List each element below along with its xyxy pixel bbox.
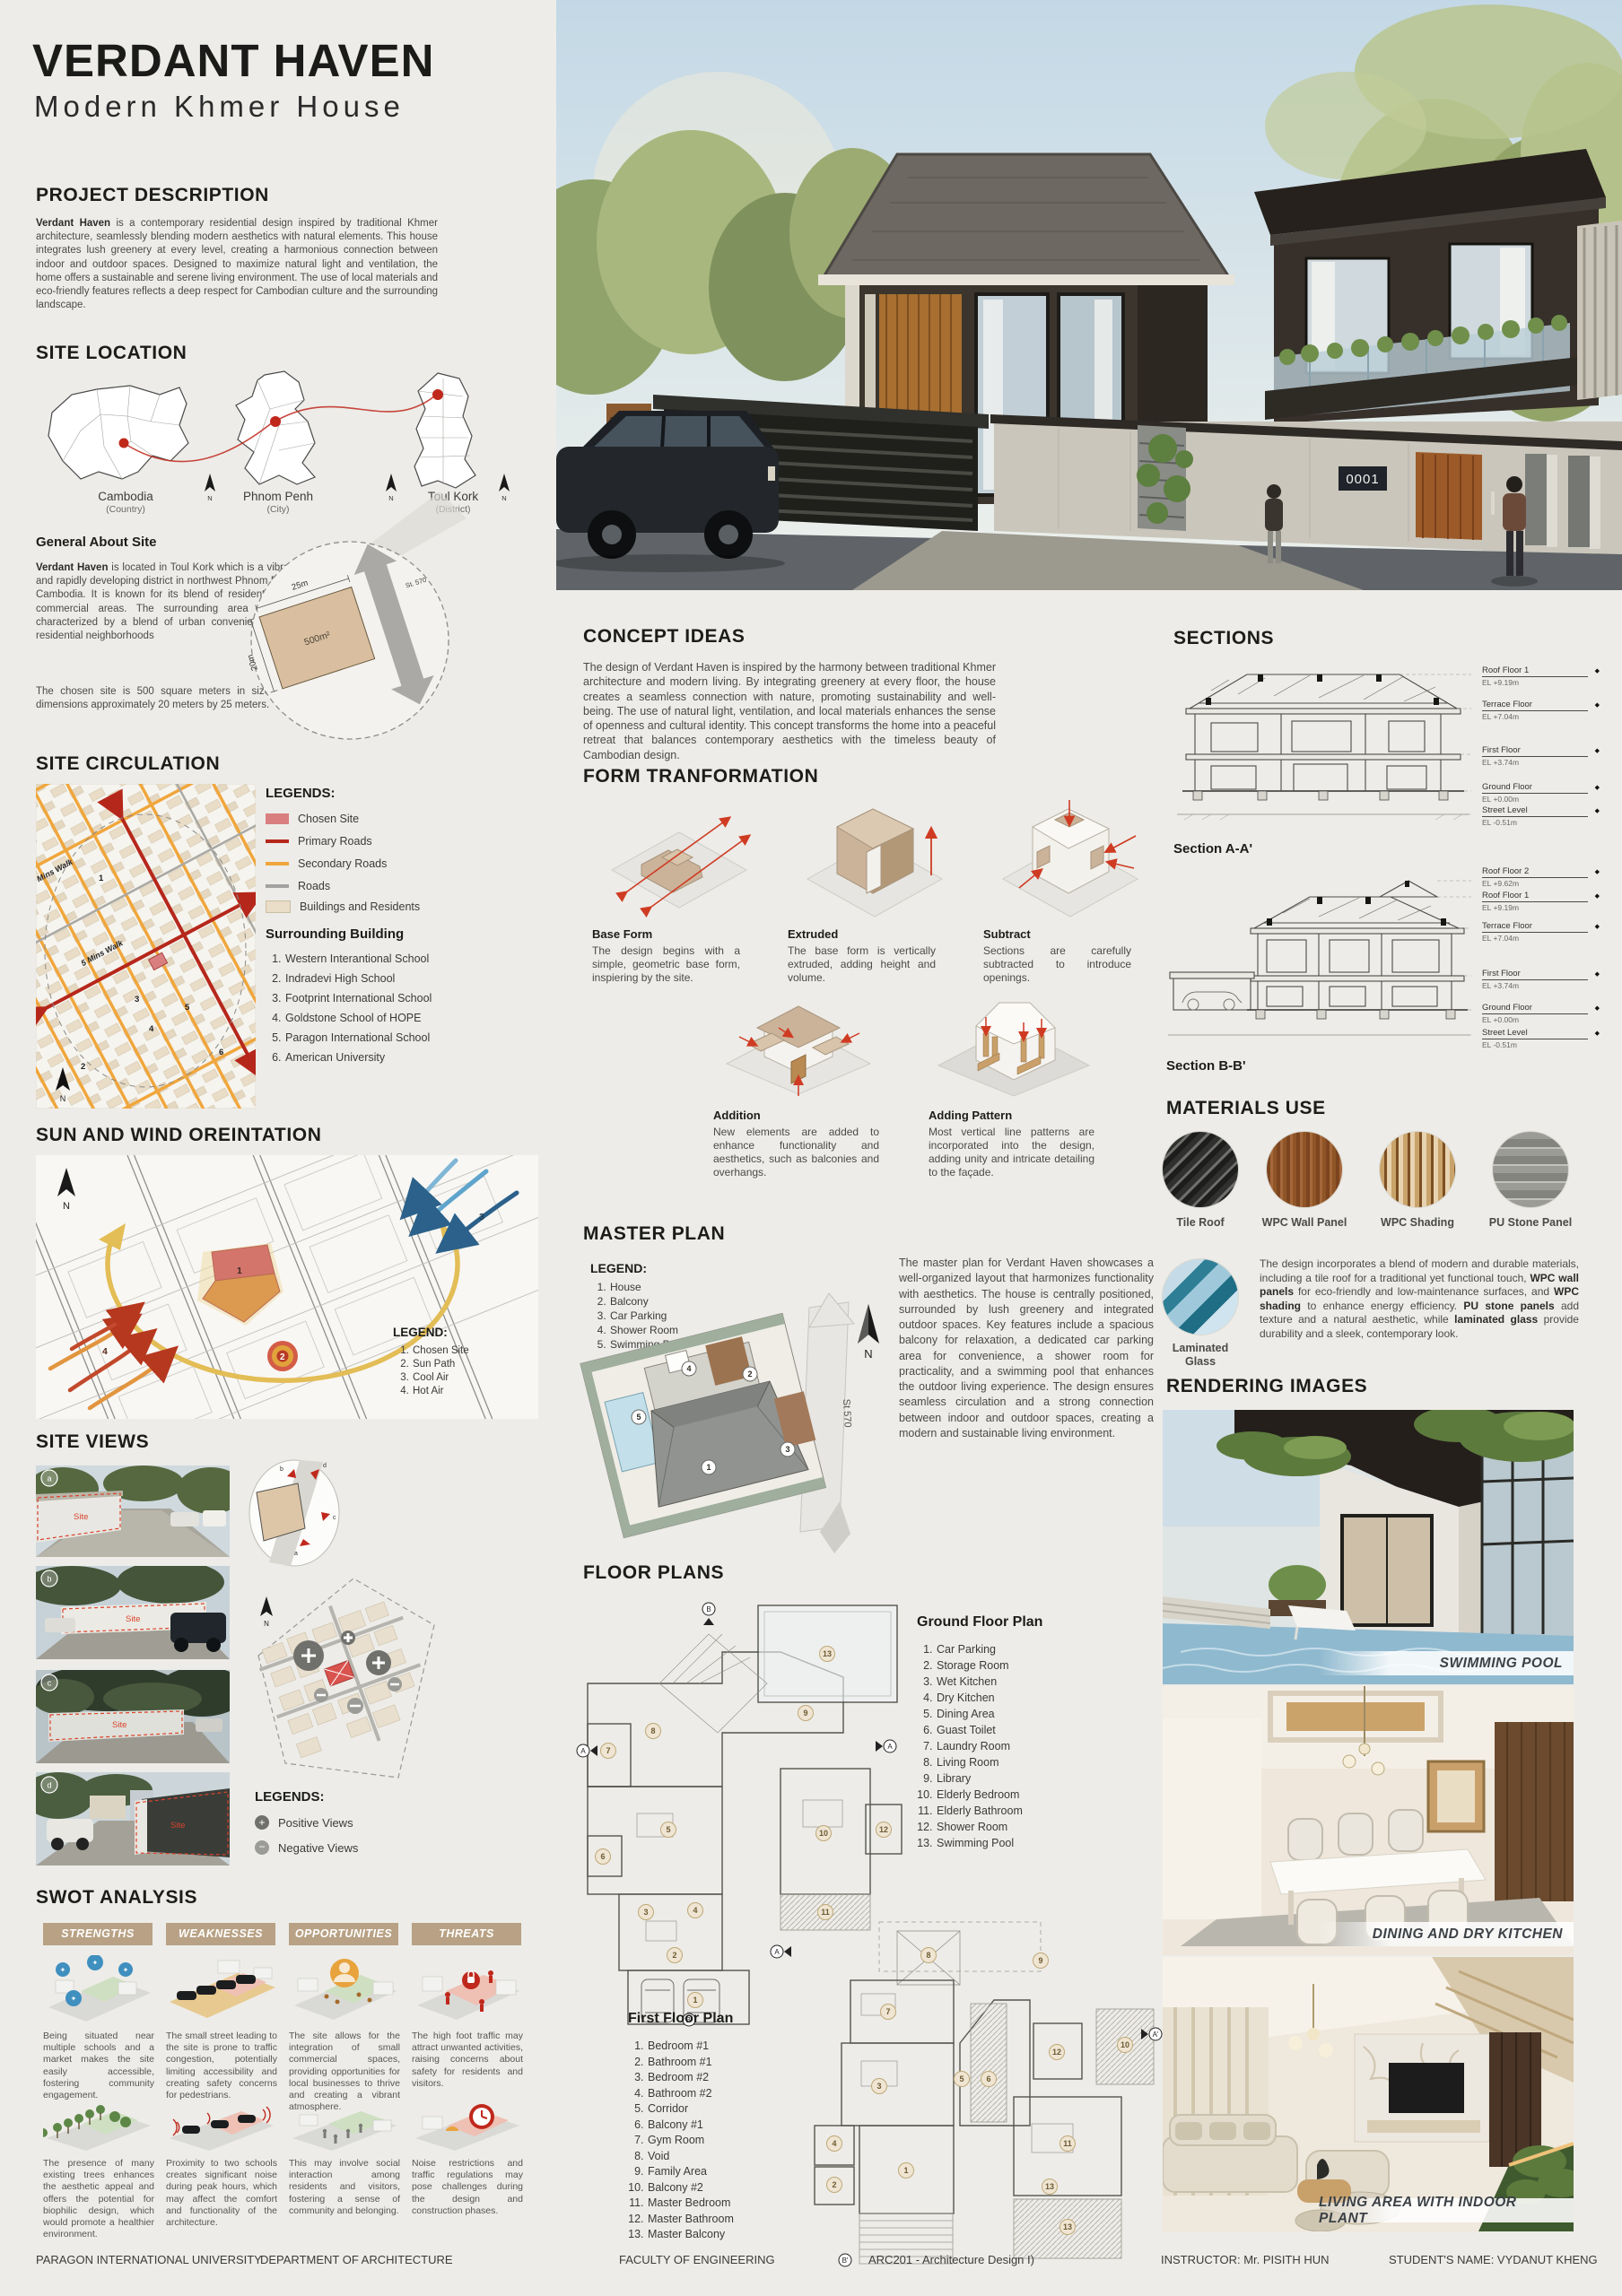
site-location-maps: N N N <box>45 370 511 504</box>
sun-symbol: 2 <box>267 1341 298 1371</box>
svg-text:12: 12 <box>1052 2048 1061 2057</box>
sections-heading: SECTIONS <box>1173 628 1274 649</box>
list-item: Storage Room <box>936 1659 1160 1672</box>
minus-icon: − <box>255 1840 269 1855</box>
svg-text:4: 4 <box>693 1906 697 1915</box>
photo-letter-badge: d <box>47 1781 51 1790</box>
site-circulation-map: 10 Mins Walk 5 Mins Walk 1 2 3 4 5 6 N <box>36 784 256 1109</box>
tv-screen <box>1389 2063 1464 2113</box>
materials-body: The design incorporates a blend of moder… <box>1260 1257 1579 1342</box>
site-view-photo-b: Site b <box>36 1566 230 1659</box>
list-item: Footprint International School <box>284 992 536 1004</box>
svg-text:N: N <box>60 1094 66 1103</box>
project-description-body: Verdant Haven is a contemporary resident… <box>36 217 438 312</box>
buildings-swatch <box>266 900 291 913</box>
form-transformation-heading: FORM TRANFORMATION <box>583 766 818 787</box>
form-step-base-body: The design begins with a simple, geometr… <box>592 944 740 985</box>
concept-ideas-body: The design of Verdant Haven is inspired … <box>583 660 996 762</box>
svg-text:2: 2 <box>672 1951 676 1960</box>
svg-text:N: N <box>864 1347 872 1361</box>
list-item: Western Interantional School <box>284 952 536 965</box>
svg-text:4: 4 <box>686 1364 691 1373</box>
render-caption-bar: SWIMMING POOL <box>1319 1651 1574 1675</box>
balcony-1-hatch <box>971 2004 1007 2122</box>
svg-text:8: 8 <box>926 1951 930 1960</box>
svg-text:3: 3 <box>785 1445 789 1454</box>
legend-secondary-roads: Secondary Roads <box>266 857 387 870</box>
svg-text:2: 2 <box>747 1370 752 1378</box>
master-plan-heading: MASTER PLAN <box>583 1223 725 1245</box>
list-item: Laundry Room <box>936 1740 1160 1752</box>
svg-text:✦: ✦ <box>123 1966 129 1974</box>
legend-positive-views: + Positive Views <box>255 1815 353 1830</box>
form-step-pattern-title: Adding Pattern <box>929 1109 1012 1122</box>
legend-roads: Roads <box>266 880 330 892</box>
legend-primary-roads: Primary Roads <box>266 835 372 848</box>
swot-strengths-illustration-2 <box>43 2100 154 2152</box>
svg-text:2: 2 <box>832 2180 836 2189</box>
section-b-level-first: First FloorEL +3.74m <box>1482 969 1588 990</box>
svg-text:A: A <box>774 1948 780 1956</box>
list-item: Chosen Site <box>412 1345 546 1356</box>
form-step-base-illustration <box>592 800 767 921</box>
list-item: Guast Toilet <box>936 1724 1160 1736</box>
house-right-volume <box>1254 149 1622 423</box>
section-a-level-street: Street LevelEL -0.51m <box>1482 805 1588 827</box>
floor-plans-heading: FLOOR PLANS <box>583 1562 724 1584</box>
svg-text:13: 13 <box>1063 2222 1072 2231</box>
road-swatch <box>266 884 289 888</box>
svg-text:✦: ✦ <box>60 1966 66 1974</box>
swot-opportunities-illustration-1 <box>289 1955 400 2023</box>
hero-render-image: 0001 <box>556 0 1622 590</box>
page-title: VERDANT HAVEN <box>32 34 434 87</box>
swot-ribbon-threats: THREATS <box>412 1923 521 1945</box>
swot-threats-text-2: Noise restrictions and traffic regulatio… <box>412 2158 523 2217</box>
section-a-level-ground: Ground FloorEL +0.00m <box>1482 782 1588 804</box>
list-item: Indradevi High School <box>284 972 536 985</box>
material-wpc-shading-swatch <box>1380 1132 1455 1207</box>
render-caption-bar: LIVING AREA WITH INDOOR PLANT <box>1319 2198 1574 2222</box>
list-item: Dining Area <box>936 1708 1160 1720</box>
site-circulation-heading: SITE CIRCULATION <box>36 753 220 775</box>
footer-student: STUDENT'S NAME: VYDANUT KHENG <box>1389 2253 1598 2266</box>
material-pu-stone-label: PU Stone Panel <box>1477 1216 1584 1229</box>
svg-text:13: 13 <box>1045 2182 1054 2191</box>
about-site-heading: General About Site <box>36 535 156 550</box>
cambodia-map <box>48 386 188 479</box>
render-dining-dry-kitchen: DINING AND DRY KITCHEN <box>1163 1686 1574 1955</box>
render-swimming-pool: SWIMMING POOL <box>1163 1410 1574 1684</box>
section-a-label: Section A-A' <box>1173 841 1252 857</box>
material-wpc-wall-swatch <box>1267 1132 1342 1207</box>
form-step-addition-body: New elements are added to enhance functi… <box>713 1126 879 1179</box>
svg-text:9: 9 <box>1038 1956 1042 1965</box>
list-item: Shower Room <box>936 1821 1160 1833</box>
swot-threats-illustration-1 <box>412 1955 523 2023</box>
north-arrow-icon: N <box>205 474 215 502</box>
swot-ribbon-strengths: STRENGTHS <box>43 1923 153 1945</box>
footer-course: ARC201 - Architecture Design I) <box>868 2253 1034 2266</box>
house-number: 0001 <box>1346 472 1379 487</box>
swot-threats-text-1: The high foot traffic may attract unwant… <box>412 2031 523 2090</box>
svg-text:6: 6 <box>986 2074 990 2083</box>
list-item: Hot Air <box>412 1386 546 1396</box>
list-item: Elderly Bedroom <box>936 1788 1160 1801</box>
list-item: Swimming Pool <box>936 1837 1160 1849</box>
svg-text:5: 5 <box>666 1825 670 1834</box>
photo-letter-badge: a <box>47 1474 51 1483</box>
svg-text:a: a <box>294 1551 298 1557</box>
material-tile-roof-label: Tile Roof <box>1147 1216 1254 1229</box>
swot-opportunities-text-2: This may involve social interaction amon… <box>289 2158 400 2217</box>
footer-faculty: FACULTY OF ENGINEERING <box>619 2253 775 2266</box>
swot-weaknesses-illustration-2 <box>166 2100 277 2152</box>
svg-text:8: 8 <box>650 1726 655 1735</box>
list-item: Paragon International School <box>284 1031 536 1044</box>
concept-ideas-heading: CONCEPT IDEAS <box>583 626 746 648</box>
svg-text:3: 3 <box>643 1908 648 1917</box>
svg-text:N: N <box>63 1201 70 1212</box>
footer-university: PARAGON INTERNATIONAL UNIVERSITY <box>36 2253 262 2266</box>
site-location-heading: SITE LOCATION <box>36 343 187 364</box>
swot-heading: SWOT ANALYSIS <box>36 1887 197 1909</box>
svg-text:5: 5 <box>959 2074 964 2083</box>
surrounding-marker-2: 2 <box>81 1062 85 1072</box>
list-item: Sun Path <box>412 1359 546 1370</box>
section-b-drawing <box>1166 870 1471 1058</box>
svg-text:5: 5 <box>636 1413 641 1422</box>
swot-strengths-text-2: The presence of many existing trees enha… <box>43 2158 154 2241</box>
form-step-subtract-title: Subtract <box>983 927 1031 941</box>
svg-text:1: 1 <box>903 2166 908 2175</box>
site-view-photo-a: Site a <box>36 1465 230 1557</box>
svg-text:1: 1 <box>706 1463 711 1472</box>
master-plan-body: The master plan for Verdant Haven showca… <box>899 1256 1154 1441</box>
rendering-images-heading: RENDERING IMAGES <box>1166 1376 1367 1397</box>
surrounding-marker-5: 5 <box>185 1003 190 1013</box>
svg-text:4: 4 <box>832 2139 836 2148</box>
site-dimensions-diagram: 25m 20m 500m² St. 570 <box>244 491 468 750</box>
list-item: Goldstone School of HOPE <box>284 1012 536 1024</box>
site-views-map: N <box>249 1570 440 1783</box>
svg-text:6: 6 <box>600 1852 605 1861</box>
surrounding-marker-4: 4 <box>149 1024 154 1034</box>
surrounding-marker-6: 6 <box>219 1048 223 1057</box>
list-item: Library <box>936 1772 1160 1785</box>
svg-text:d: d <box>323 1463 327 1469</box>
svg-text:A: A <box>887 1743 893 1751</box>
list-item: Cool Air <box>412 1372 546 1383</box>
form-step-base-title: Base Form <box>592 927 652 941</box>
site-label: Site <box>126 1614 140 1624</box>
swot-strengths-text-1: Being situated near multiple schools and… <box>43 2031 154 2101</box>
toul-kork-map <box>414 373 475 488</box>
ground-floor-plan-list: Car Parking Storage Room Wet Kitchen Dry… <box>920 1643 1160 1849</box>
plus-icon: + <box>255 1815 269 1830</box>
street-label: St 570 <box>841 1399 853 1428</box>
site-views-legend-title: LEGENDS: <box>255 1789 325 1805</box>
secondary-road-swatch <box>266 862 289 865</box>
footer-instructor: INSTRUCTOR: Mr. PISITH HUN <box>1161 2253 1330 2266</box>
primary-road-swatch <box>266 839 289 843</box>
circulation-legend-title: LEGENDS: <box>266 786 336 801</box>
section-a-level-roof1: Roof Floor 1EL +9.19m <box>1482 665 1588 687</box>
site-view-photo-c: Site c <box>36 1670 230 1763</box>
svg-text:A: A <box>580 1747 586 1755</box>
material-tile-roof-swatch <box>1163 1132 1238 1207</box>
svg-text:11: 11 <box>1063 2139 1072 2148</box>
project-description-heading: PROJECT DESCRIPTION <box>36 185 269 206</box>
material-wpc-shading-label: WPC Shading <box>1364 1216 1471 1229</box>
sun-wind-heading: SUN AND WIND OREINTATION <box>36 1125 322 1146</box>
surrounding-building-list: Western Interantional School Indradevi H… <box>269 952 536 1064</box>
svg-text:2: 2 <box>280 1352 285 1362</box>
material-pu-stone-swatch <box>1493 1132 1568 1207</box>
section-b-level-roof1: Roof Floor 1EL +9.19m <box>1482 891 1588 912</box>
svg-text:10: 10 <box>1121 2040 1129 2049</box>
sun-wind-legend-list: Chosen Site Sun Path Cool Air Hot Air <box>397 1345 546 1396</box>
section-a-drawing <box>1175 664 1471 843</box>
site-views-key-diagram: bdac <box>248 1458 341 1568</box>
surrounding-building-title: Surrounding Building <box>266 926 404 942</box>
master-plan-drawing: St 570 1 2 3 4 5 <box>574 1291 884 1556</box>
form-step-addition-title: Addition <box>713 1109 761 1122</box>
first-floor-plan-drawing: 8 9 7 3 5 6 12 10 11 13 4 2 1 13 A A' B' <box>745 1918 1166 2269</box>
presentation-board: 0001 <box>0 0 1622 2296</box>
list-item: Dry Kitchen <box>936 1692 1160 1704</box>
swot-threats-illustration-2 <box>412 2100 523 2152</box>
north-arrow-icon: N <box>850 1302 886 1365</box>
hot-air-number: 4 <box>102 1346 108 1357</box>
svg-text:B: B <box>706 1605 711 1613</box>
svg-text:N: N <box>264 1620 269 1628</box>
swot-weaknesses-illustration-1 <box>166 1955 277 2023</box>
list-item: Car Parking <box>936 1643 1160 1656</box>
form-step-addition-illustration <box>709 997 888 1098</box>
svg-text:1: 1 <box>693 1996 697 2005</box>
map-label-cambodia: Cambodia(Country) <box>67 490 184 515</box>
swot-weaknesses-text-2: Proximity to two schools creates signifi… <box>166 2158 277 2229</box>
section-a-level-first: First FloorEL +3.74m <box>1482 745 1588 767</box>
svg-text:11: 11 <box>821 1908 830 1917</box>
footer-department: DEPARTMENT OF ARCHITECTURE <box>260 2253 453 2266</box>
first-floor-plan-title: First Floor Plan <box>628 2011 733 2027</box>
swot-opportunities-illustration-2 <box>289 2100 400 2152</box>
photo-letter-badge: b <box>47 1575 51 1584</box>
svg-text:13: 13 <box>823 1649 832 1658</box>
svg-text:✦: ✦ <box>71 1995 77 2003</box>
site-views-heading: SITE VIEWS <box>36 1431 149 1453</box>
form-step-extruded-body: The base form is vertically extruded, ad… <box>788 944 936 985</box>
svg-text:c: c <box>333 1515 336 1521</box>
section-b-label: Section B-B' <box>1166 1058 1246 1074</box>
svg-text:b: b <box>280 1466 283 1473</box>
form-step-pattern-illustration <box>924 997 1103 1098</box>
list-item: American University <box>284 1051 536 1064</box>
photo-letter-badge: c <box>48 1679 52 1688</box>
material-laminated-glass-swatch <box>1163 1259 1238 1335</box>
section-b-level-roof2: Roof Floor 2EL +9.62m <box>1482 866 1588 888</box>
svg-text:9: 9 <box>803 1709 807 1718</box>
svg-text:✦: ✦ <box>92 1959 99 1967</box>
svg-text:10: 10 <box>819 1829 828 1838</box>
section-b-level-street: Street LevelEL -0.51m <box>1482 1028 1588 1049</box>
site-marker-number: 1 <box>237 1265 242 1276</box>
north-arrow-icon: N <box>260 1596 273 1628</box>
site-label: Site <box>74 1512 88 1522</box>
form-step-pattern-body: Most vertical line patterns are incorpor… <box>929 1126 1094 1179</box>
swot-ribbon-opportunities: OPPORTUNITIES <box>289 1923 398 1945</box>
legend-chosen-site: Chosen Site <box>266 813 359 825</box>
master-plan-legend-title: LEGEND: <box>590 1261 647 1275</box>
section-a-level-terrace: Terrace FloorEL +7.04m <box>1482 700 1588 721</box>
site-label: Site <box>112 1720 126 1730</box>
list-item: Wet Kitchen <box>936 1675 1160 1688</box>
svg-text:A': A' <box>1153 2031 1159 2039</box>
list-item: Living Room <box>936 1756 1160 1769</box>
swot-weaknesses-text-1: The small street leading to the site is … <box>166 2031 277 2101</box>
svg-text:B': B' <box>842 2257 849 2265</box>
svg-text:7: 7 <box>885 2007 890 2016</box>
materials-heading: MATERIALS USE <box>1166 1098 1326 1119</box>
cool-air-number: 3 <box>479 1212 484 1222</box>
page-subtitle: Modern Khmer House <box>34 90 405 124</box>
swot-ribbon-weaknesses: WEAKNESSES <box>166 1923 275 1945</box>
phnom-penh-map <box>236 371 315 484</box>
chosen-site-swatch <box>266 813 289 824</box>
ground-floor-plan-title: Ground Floor Plan <box>917 1614 1042 1631</box>
material-laminated-glass-label: LaminatedGlass <box>1147 1342 1254 1369</box>
section-b-level-terrace: Terrace FloorEL +7.04m <box>1482 921 1588 943</box>
svg-text:3: 3 <box>876 2082 881 2091</box>
svg-text:7: 7 <box>606 1746 610 1755</box>
list-item: Elderly Bathroom <box>936 1805 1160 1817</box>
form-step-extruded-title: Extruded <box>788 927 838 941</box>
site-view-photo-d: Site d <box>36 1772 230 1865</box>
render-caption-bar: DINING AND DRY KITCHEN <box>1319 1922 1574 1946</box>
surrounding-marker-3: 3 <box>135 995 139 1004</box>
material-wpc-wall-label: WPC Wall Panel <box>1251 1216 1358 1229</box>
surrounding-marker-1: 1 <box>99 874 104 883</box>
section-b-level-ground: Ground FloorEL +0.00m <box>1482 1003 1588 1024</box>
form-step-subtract-body: Sections are carefully subtracted to int… <box>983 944 1131 985</box>
svg-text:N: N <box>207 494 212 502</box>
sun-wind-legend-title: LEGEND: <box>393 1326 448 1339</box>
form-step-subtract-illustration <box>983 800 1158 921</box>
swot-strengths-illustration-1: ✦✦✦✦ <box>43 1955 154 2023</box>
site-label: Site <box>170 1821 185 1831</box>
svg-text:12: 12 <box>879 1825 888 1834</box>
form-step-extruded-illustration <box>788 800 963 921</box>
legend-buildings: Buildings and Residents <box>266 900 420 913</box>
render-living-area: LIVING AREA WITH INDOOR PLANT <box>1163 1957 1574 2231</box>
legend-negative-views: − Negative Views <box>255 1840 358 1855</box>
